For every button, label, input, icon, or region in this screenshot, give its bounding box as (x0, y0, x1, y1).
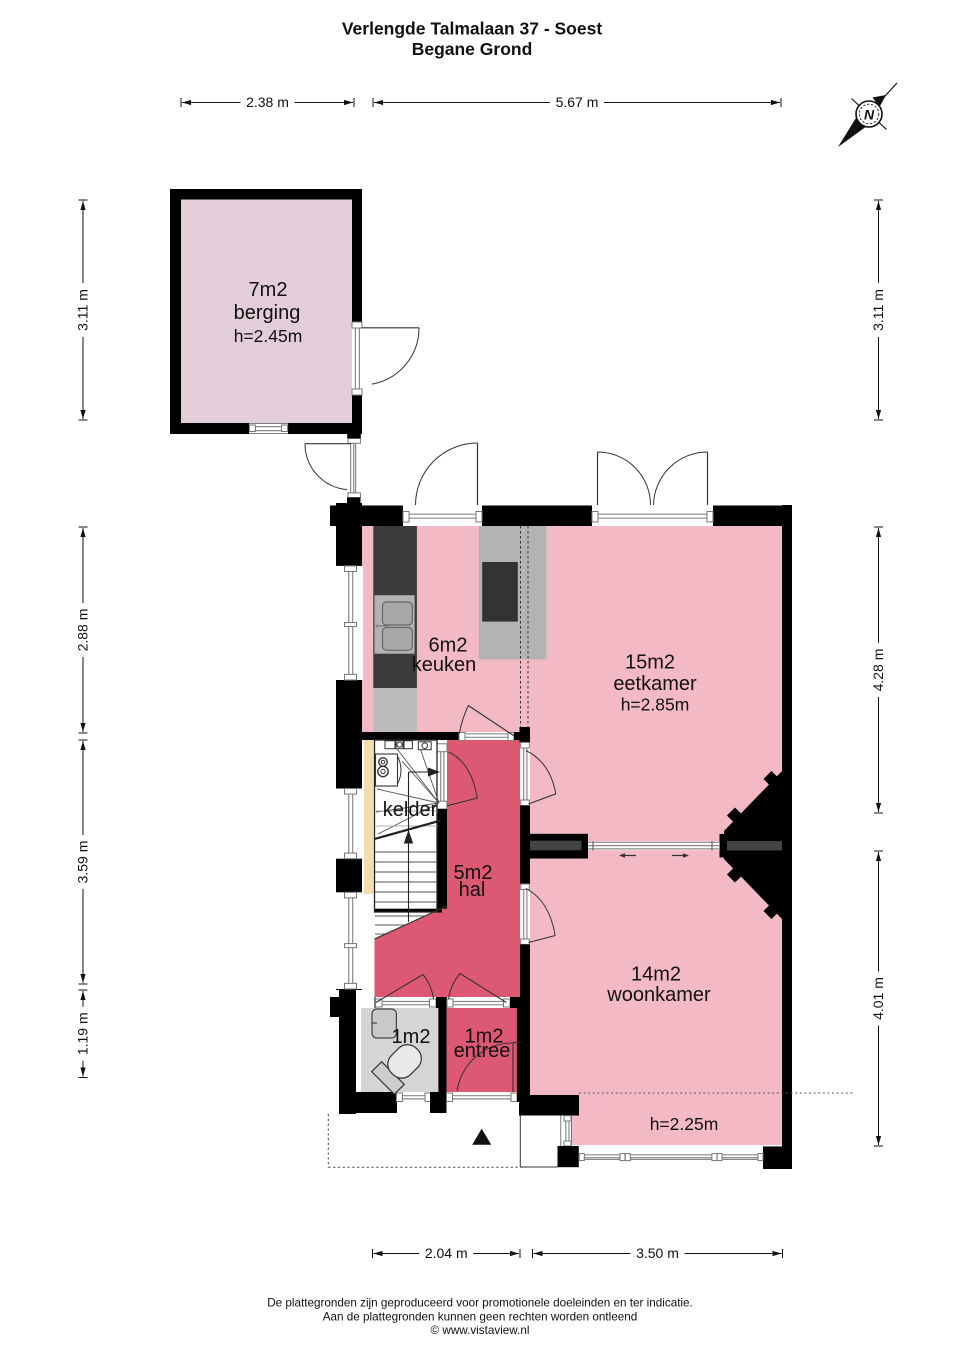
svg-text:1.19 m: 1.19 m (75, 1012, 91, 1055)
svg-text:Aan de plattegronden kunnen ge: Aan de plattegronden kunnen geen rechten… (323, 1311, 638, 1324)
svg-text:woonkamer: woonkamer (606, 984, 711, 1006)
svg-text:2.88 m: 2.88 m (75, 609, 91, 652)
svg-text:2.04 m: 2.04 m (425, 1245, 468, 1261)
svg-text:© www.vistaview.nl: © www.vistaview.nl (431, 1324, 530, 1337)
svg-text:4.01 m: 4.01 m (870, 977, 886, 1020)
svg-text:3.11 m: 3.11 m (870, 289, 886, 331)
svg-text:1m2: 1m2 (392, 1026, 431, 1048)
svg-text:15m2: 15m2 (625, 652, 675, 674)
svg-text:4.28 m: 4.28 m (870, 649, 886, 692)
svg-text:2.38 m: 2.38 m (246, 94, 289, 110)
svg-text:N: N (864, 107, 875, 123)
svg-text:keuken: keuken (412, 654, 477, 676)
svg-text:3.11 m: 3.11 m (75, 289, 91, 331)
svg-text:h=2.25m: h=2.25m (650, 1114, 719, 1134)
svg-text:kelder: kelder (383, 799, 438, 821)
svg-text:hal: hal (459, 879, 486, 901)
svg-text:5.67 m: 5.67 m (556, 94, 599, 110)
svg-text:14m2: 14m2 (631, 964, 681, 986)
svg-text:berging: berging (234, 302, 301, 324)
svg-text:Begane Grond: Begane Grond (412, 39, 533, 59)
svg-text:De plattegronden zijn geproduc: De plattegronden zijn geproduceerd voor … (267, 1297, 693, 1310)
svg-text:+: + (374, 621, 379, 631)
svg-text:3.59 m: 3.59 m (75, 841, 91, 884)
svg-text:eetkamer: eetkamer (613, 673, 697, 695)
svg-text:7m2: 7m2 (249, 279, 288, 301)
svg-text:h=2.45m: h=2.45m (234, 326, 303, 346)
svg-text:entree: entree (454, 1040, 511, 1062)
svg-text:Verlengde Talmalaan 37 - Soest: Verlengde Talmalaan 37 - Soest (342, 19, 603, 39)
svg-text:3.50 m: 3.50 m (636, 1245, 679, 1261)
svg-text:h=2.85m: h=2.85m (621, 695, 690, 715)
